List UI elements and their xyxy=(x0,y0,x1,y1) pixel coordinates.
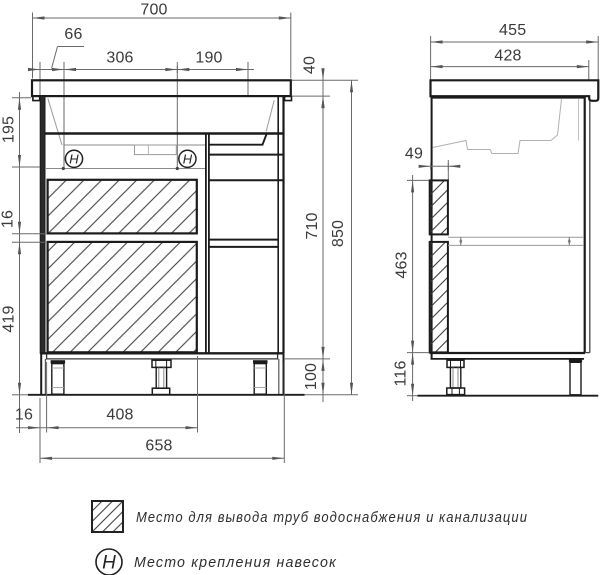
svg-text:66: 66 xyxy=(64,26,82,43)
svg-text:408: 408 xyxy=(106,407,133,424)
svg-text:Место для вывода труб водоснаб: Место для вывода труб водоснабжения и ка… xyxy=(136,510,528,526)
svg-text:428: 428 xyxy=(494,47,521,64)
svg-text:700: 700 xyxy=(140,2,167,19)
svg-text:710: 710 xyxy=(304,212,321,239)
svg-text:16: 16 xyxy=(15,407,33,424)
svg-text:455: 455 xyxy=(499,22,526,39)
svg-text:49: 49 xyxy=(405,146,423,163)
svg-text:850: 850 xyxy=(330,220,347,247)
svg-text:40: 40 xyxy=(301,56,318,74)
svg-text:195: 195 xyxy=(0,116,17,143)
svg-text:306: 306 xyxy=(106,49,133,66)
svg-text:H: H xyxy=(69,152,79,167)
svg-text:16: 16 xyxy=(0,210,16,228)
svg-text:Место крепления навесок: Место крепления навесок xyxy=(134,555,337,571)
svg-text:116: 116 xyxy=(392,360,409,386)
svg-text:658: 658 xyxy=(145,438,172,455)
svg-text:463: 463 xyxy=(393,251,410,278)
svg-text:100: 100 xyxy=(303,363,320,390)
svg-text:419: 419 xyxy=(0,305,17,332)
svg-text:H: H xyxy=(102,553,116,574)
svg-text:190: 190 xyxy=(195,49,222,66)
svg-text:H: H xyxy=(183,152,193,167)
